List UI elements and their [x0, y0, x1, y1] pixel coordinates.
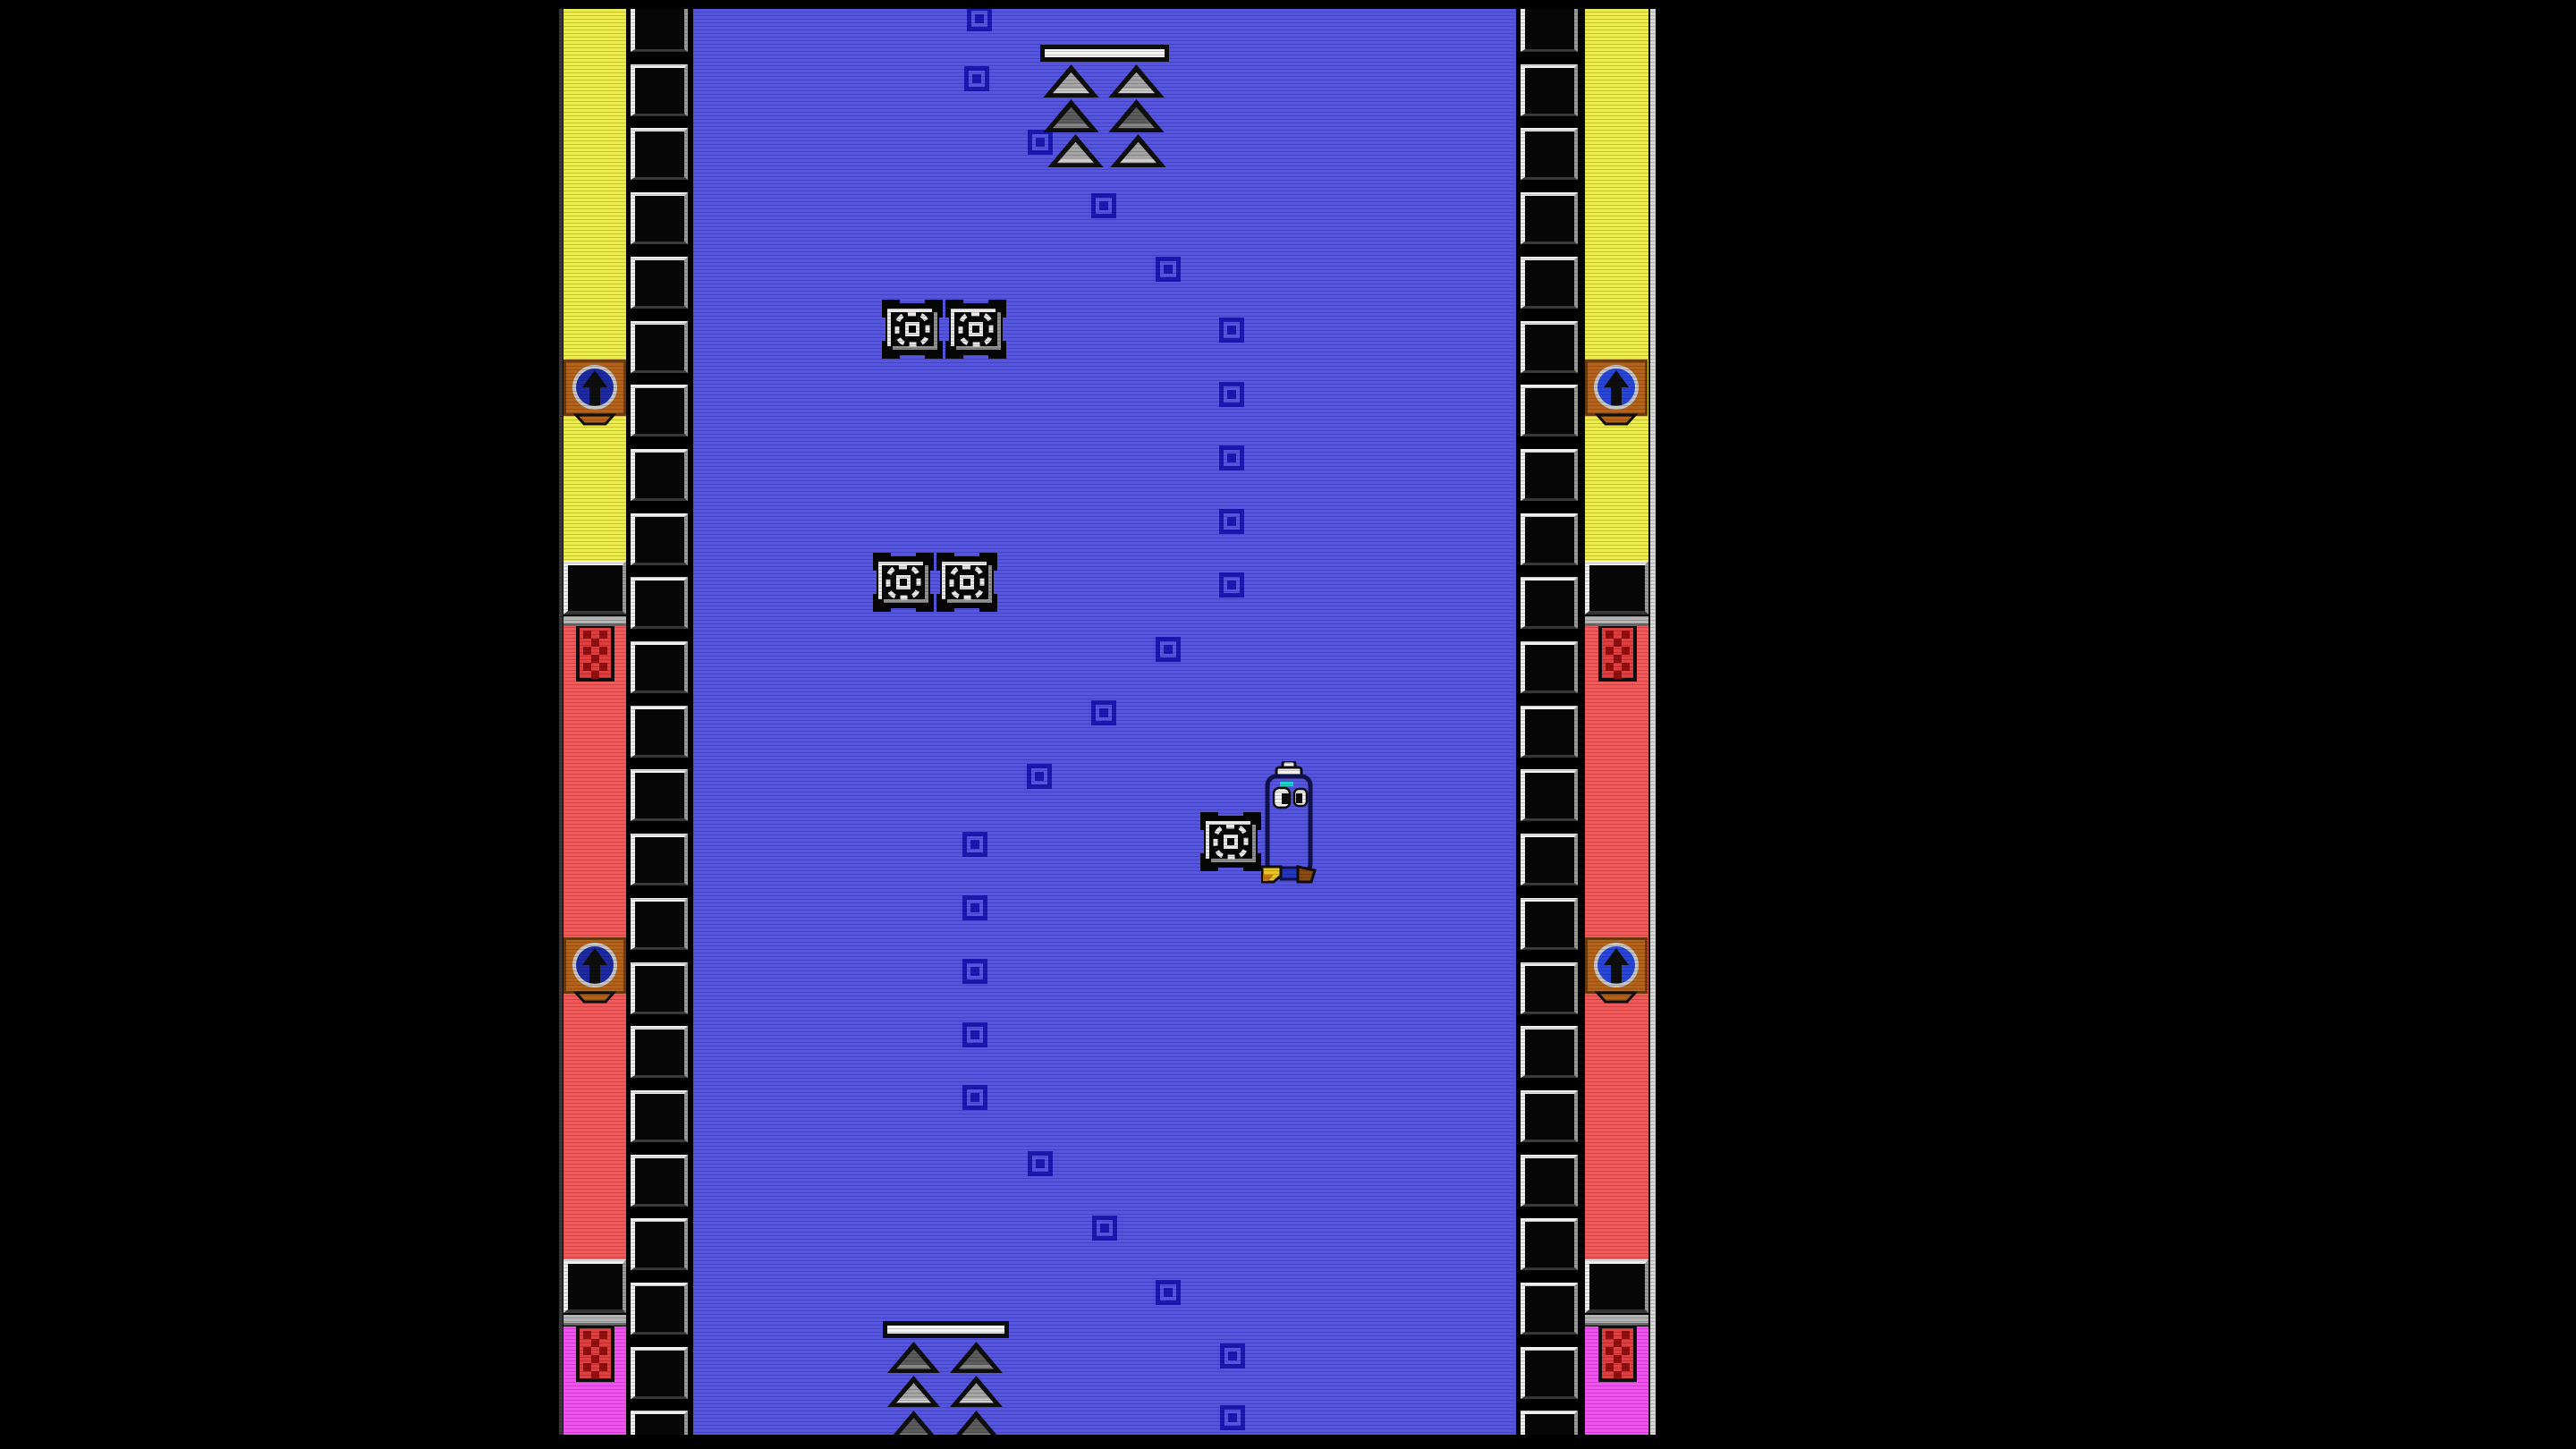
- spike-triangle: [886, 1411, 941, 1435]
- hazard-flag: [1598, 626, 1637, 682]
- wall-block: [631, 64, 688, 116]
- trail-dot: [1091, 193, 1116, 218]
- trail-dot-core: [970, 1093, 979, 1102]
- spike-triangle-icon: [1107, 64, 1165, 97]
- wall-block: [1521, 1283, 1578, 1335]
- wall-block: [1521, 577, 1578, 629]
- hazard-flag: [576, 1326, 614, 1382]
- crate-block: [1200, 812, 1261, 871]
- wall-block: [631, 128, 688, 180]
- crate-block-icon: [873, 553, 934, 612]
- wall-block: [1521, 128, 1578, 180]
- wall-block: [1521, 1090, 1578, 1142]
- wall-block: [1521, 641, 1578, 693]
- spike-triangle: [1107, 64, 1165, 97]
- trail-dot: [1220, 1405, 1245, 1430]
- crate-block: [945, 300, 1006, 359]
- trail-dot-core: [1036, 138, 1045, 147]
- wall-block: [631, 1090, 688, 1142]
- wall-block: [631, 769, 688, 821]
- trail-dot-core: [1228, 1413, 1237, 1422]
- crate-block: [882, 300, 943, 359]
- separator-ledge-left: [563, 616, 626, 626]
- portal-up-tile: [1585, 360, 1648, 426]
- wall-block: [631, 1347, 688, 1399]
- trail-dot-core: [1099, 201, 1108, 210]
- trail-dot-core: [1164, 265, 1173, 274]
- spike-triangle: [949, 1342, 1004, 1373]
- spike-triangle: [1042, 99, 1100, 132]
- wall-block: [1521, 769, 1578, 821]
- trail-dot: [1220, 1343, 1245, 1368]
- player-sprite: [1261, 761, 1317, 886]
- trail-dot: [962, 832, 987, 857]
- crt-display: [0, 0, 2576, 1449]
- portal-up-icon: [563, 360, 626, 426]
- portal-up-tile: [563, 937, 626, 1004]
- trail-dot: [962, 1085, 987, 1110]
- trail-dot: [1219, 318, 1244, 343]
- wall-block: [631, 962, 688, 1014]
- hazard-flag: [576, 626, 614, 682]
- trail-dot: [1092, 1216, 1117, 1241]
- crate-block-icon: [936, 553, 997, 612]
- spike-triangle-icon: [886, 1411, 941, 1435]
- portal-up-icon: [1585, 360, 1648, 426]
- wall-block: [1521, 385, 1578, 436]
- separator-ledge-left: [563, 1315, 626, 1326]
- trail-dot-core: [1228, 1352, 1237, 1360]
- separator-block-left: [563, 1259, 626, 1313]
- trail-dot-core: [1099, 708, 1108, 717]
- wall-block: [1521, 834, 1578, 885]
- spike-triangle: [1107, 99, 1165, 132]
- wall-block: [631, 1026, 688, 1078]
- trail-dot-core: [1100, 1224, 1109, 1233]
- trail-dot-core: [1227, 390, 1236, 399]
- platform-bar-bottom: [883, 1321, 1009, 1338]
- trail-dot-core: [1164, 645, 1173, 654]
- trail-dot-core: [970, 840, 979, 849]
- wall-block: [631, 449, 688, 501]
- wall-block: [1521, 1411, 1578, 1435]
- crate-block-icon: [1200, 812, 1261, 871]
- wall-block: [1521, 257, 1578, 309]
- trail-dot: [1091, 700, 1116, 725]
- portal-up-icon: [563, 937, 626, 1004]
- wall-block: [631, 898, 688, 950]
- wall-block: [1521, 192, 1578, 244]
- spike-triangle: [886, 1342, 941, 1373]
- trail-dot-core: [970, 1030, 979, 1039]
- spike-triangle: [1042, 64, 1100, 97]
- trail-dot-core: [970, 967, 979, 976]
- spike-triangle-icon: [1042, 64, 1100, 97]
- wall-block: [631, 1218, 688, 1270]
- wall-block: [1521, 706, 1578, 758]
- trail-dot: [962, 895, 987, 920]
- yellow-zone-right: [1585, 9, 1648, 561]
- wall-block: [1521, 321, 1578, 373]
- spike-triangle: [886, 1376, 941, 1407]
- crate-block-icon: [882, 300, 943, 359]
- spike-triangle-icon: [886, 1342, 941, 1373]
- wall-block: [631, 1283, 688, 1335]
- crate-block: [936, 553, 997, 612]
- wall-block: [631, 257, 688, 309]
- spike-triangle-icon: [886, 1376, 941, 1407]
- trail-dot: [1028, 1151, 1053, 1176]
- portal-up-icon: [1585, 937, 1648, 1004]
- wall-column-left: [631, 9, 688, 1435]
- portal-up-tile: [563, 360, 626, 426]
- crate-block: [873, 553, 934, 612]
- wall-block: [631, 706, 688, 758]
- spike-triangle-icon: [1107, 99, 1165, 132]
- spike-triangle: [1109, 134, 1167, 167]
- wall-block: [631, 513, 688, 565]
- spike-triangle-icon: [1042, 99, 1100, 132]
- wall-block: [1521, 1155, 1578, 1207]
- hazard-flag-icon: [1598, 626, 1637, 682]
- hazard-flag-icon: [576, 1326, 614, 1382]
- trail-dot: [967, 9, 992, 31]
- wall-block: [1521, 1218, 1578, 1270]
- trail-dot: [1027, 764, 1052, 789]
- portal-up-tile: [1585, 937, 1648, 1004]
- wall-block: [631, 641, 688, 693]
- wall-block: [1521, 898, 1578, 950]
- screen-edge-line: [559, 9, 563, 1435]
- trail-dot-core: [970, 903, 979, 912]
- wall-block: [1521, 64, 1578, 116]
- trail-dot: [1156, 257, 1181, 282]
- spike-triangle: [949, 1376, 1004, 1407]
- wall-block: [1521, 962, 1578, 1014]
- separator-ledge-right: [1585, 1315, 1648, 1326]
- wall-block: [631, 1155, 688, 1207]
- separator-block-right: [1585, 1259, 1648, 1313]
- trail-dot: [962, 959, 987, 984]
- wall-block: [631, 834, 688, 885]
- trail-dot: [964, 66, 989, 91]
- wall-block: [631, 577, 688, 629]
- trail-dot: [962, 1022, 987, 1047]
- wall-block: [631, 9, 688, 52]
- spike-triangle-icon: [1046, 134, 1105, 167]
- hazard-flag-icon: [1598, 1326, 1637, 1382]
- wall-block: [1521, 1026, 1578, 1078]
- screen-edge-line: [1650, 9, 1656, 1435]
- trail-dot-core: [1035, 772, 1044, 781]
- yellow-zone-left: [563, 9, 626, 561]
- trail-dot-core: [1036, 1159, 1045, 1168]
- trail-dot-core: [972, 74, 981, 83]
- hazard-flag-icon: [576, 626, 614, 682]
- wall-block: [631, 321, 688, 373]
- trail-dot-core: [1227, 453, 1236, 462]
- trail-dot-core: [975, 14, 984, 23]
- hazard-flag: [1598, 1326, 1637, 1382]
- separator-block-right: [1585, 561, 1648, 614]
- trail-dot: [1156, 637, 1181, 662]
- platform-bar-top: [1040, 45, 1169, 62]
- wall-block: [631, 1411, 688, 1435]
- wall-block: [1521, 1347, 1578, 1399]
- separator-block-left: [563, 561, 626, 614]
- player-character: [1261, 761, 1317, 886]
- spike-triangle-icon: [949, 1411, 1004, 1435]
- spike-triangle-icon: [1109, 134, 1167, 167]
- trail-dot-core: [1227, 580, 1236, 589]
- trail-dot: [1219, 382, 1244, 407]
- wall-column-right: [1521, 9, 1578, 1435]
- trail-dot: [1156, 1280, 1181, 1305]
- wall-block: [631, 192, 688, 244]
- trail-dot-core: [1227, 326, 1236, 335]
- trail-dot-core: [1227, 517, 1236, 526]
- spike-triangle: [1046, 134, 1105, 167]
- trail-dot: [1219, 509, 1244, 534]
- trail-dot: [1219, 572, 1244, 597]
- wall-block: [1521, 513, 1578, 565]
- game-screen[interactable]: [559, 9, 1657, 1435]
- wall-block: [1521, 449, 1578, 501]
- crate-block-icon: [945, 300, 1006, 359]
- spike-triangle-icon: [949, 1376, 1004, 1407]
- trail-dot: [1219, 445, 1244, 470]
- wall-block: [631, 385, 688, 436]
- spike-triangle: [949, 1411, 1004, 1435]
- spike-triangle-icon: [949, 1342, 1004, 1373]
- separator-ledge-right: [1585, 616, 1648, 626]
- trail-dot-core: [1164, 1288, 1173, 1297]
- wall-block: [1521, 9, 1578, 52]
